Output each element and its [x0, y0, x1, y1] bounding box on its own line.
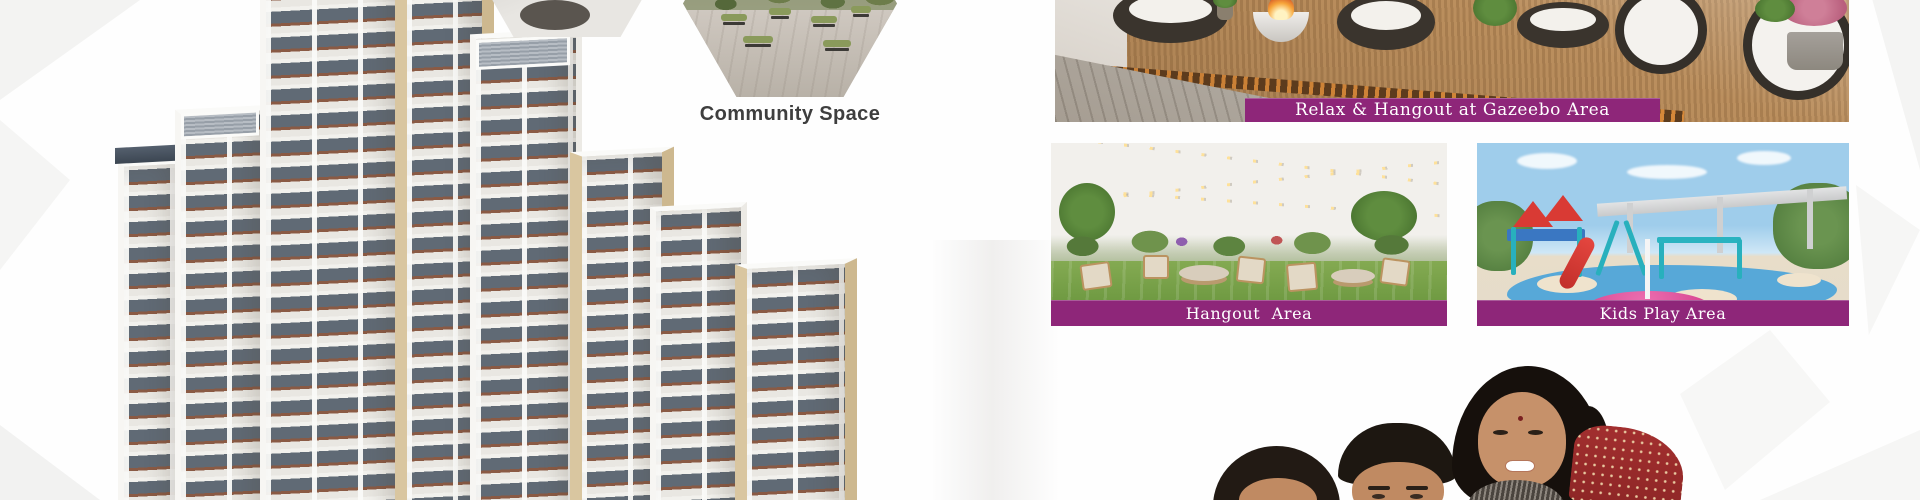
flower-planter — [1787, 32, 1843, 70]
building-roof-louver — [476, 35, 570, 70]
brochure-page: Community Space Relax & Hangout at Gazee… — [0, 0, 1920, 500]
garden-chair — [1286, 262, 1318, 293]
photo-detail — [520, 0, 590, 30]
stone-bench — [851, 6, 871, 13]
background-facet — [0, 425, 100, 500]
man-eye — [1372, 494, 1385, 499]
garden-chair — [1379, 257, 1410, 287]
building-roof-louver — [181, 109, 259, 139]
community-space-label: Community Space — [683, 103, 897, 126]
hangout-photo[interactable]: Hangout Area — [1051, 143, 1447, 326]
background-facet — [1760, 430, 1920, 500]
family-photo — [1205, 360, 1705, 500]
stone-bench — [743, 36, 773, 43]
woman-smile — [1505, 460, 1535, 472]
play-deck — [1507, 229, 1585, 241]
woman-eye — [1528, 430, 1543, 435]
woman-red-dress — [1568, 422, 1688, 500]
background-facet — [930, 240, 1060, 500]
stone-bench — [769, 8, 791, 15]
gazeebo-photo[interactable]: Relax & Hangout at Gazeebo Area — [1055, 0, 1849, 122]
splash-pad-patch — [1777, 273, 1821, 287]
gazeebo-caption: Relax & Hangout at Gazeebo Area — [1245, 98, 1660, 122]
hangout-caption: Hangout Area — [1051, 300, 1447, 326]
stone-bench — [823, 40, 851, 47]
building-tower — [650, 202, 747, 500]
stone-bench — [811, 16, 837, 23]
garden-chair — [1236, 256, 1267, 285]
play-pole — [1511, 227, 1516, 275]
building-tower — [735, 258, 857, 500]
pergola-post — [1717, 197, 1723, 253]
kids-play-photo[interactable]: Kids Play Area — [1477, 143, 1849, 326]
cloud — [1737, 151, 1791, 165]
pergola-post — [1807, 189, 1813, 249]
cloud — [1627, 165, 1707, 179]
woman-eye — [1493, 430, 1508, 435]
building-roof-cap — [115, 145, 178, 164]
garden-chair — [1143, 255, 1169, 279]
monkey-bars — [1657, 237, 1741, 243]
man-eyebrow — [1406, 486, 1428, 490]
play-tent-roof — [1543, 195, 1583, 221]
background-facet — [1852, 0, 1920, 170]
bindi — [1518, 416, 1523, 421]
fire-flame — [1268, 0, 1294, 20]
shade-pole — [1645, 239, 1650, 299]
kids-caption: Kids Play Area — [1477, 300, 1849, 326]
building-tower — [175, 105, 272, 500]
wicker-chair — [1517, 2, 1609, 48]
man-eyebrow — [1368, 486, 1390, 490]
building-tower — [260, 0, 407, 500]
play-pole — [1737, 239, 1742, 279]
cloud — [1517, 153, 1577, 169]
stone-bench — [721, 14, 747, 21]
garden-chair — [1079, 261, 1112, 291]
garden-table — [1331, 269, 1375, 283]
background-facet — [0, 120, 70, 270]
woman-face — [1478, 392, 1566, 488]
building-tower — [470, 28, 582, 500]
play-pole — [1659, 239, 1664, 279]
background-facet — [1856, 185, 1920, 335]
man-eye — [1410, 494, 1423, 499]
garden-table — [1179, 265, 1229, 281]
